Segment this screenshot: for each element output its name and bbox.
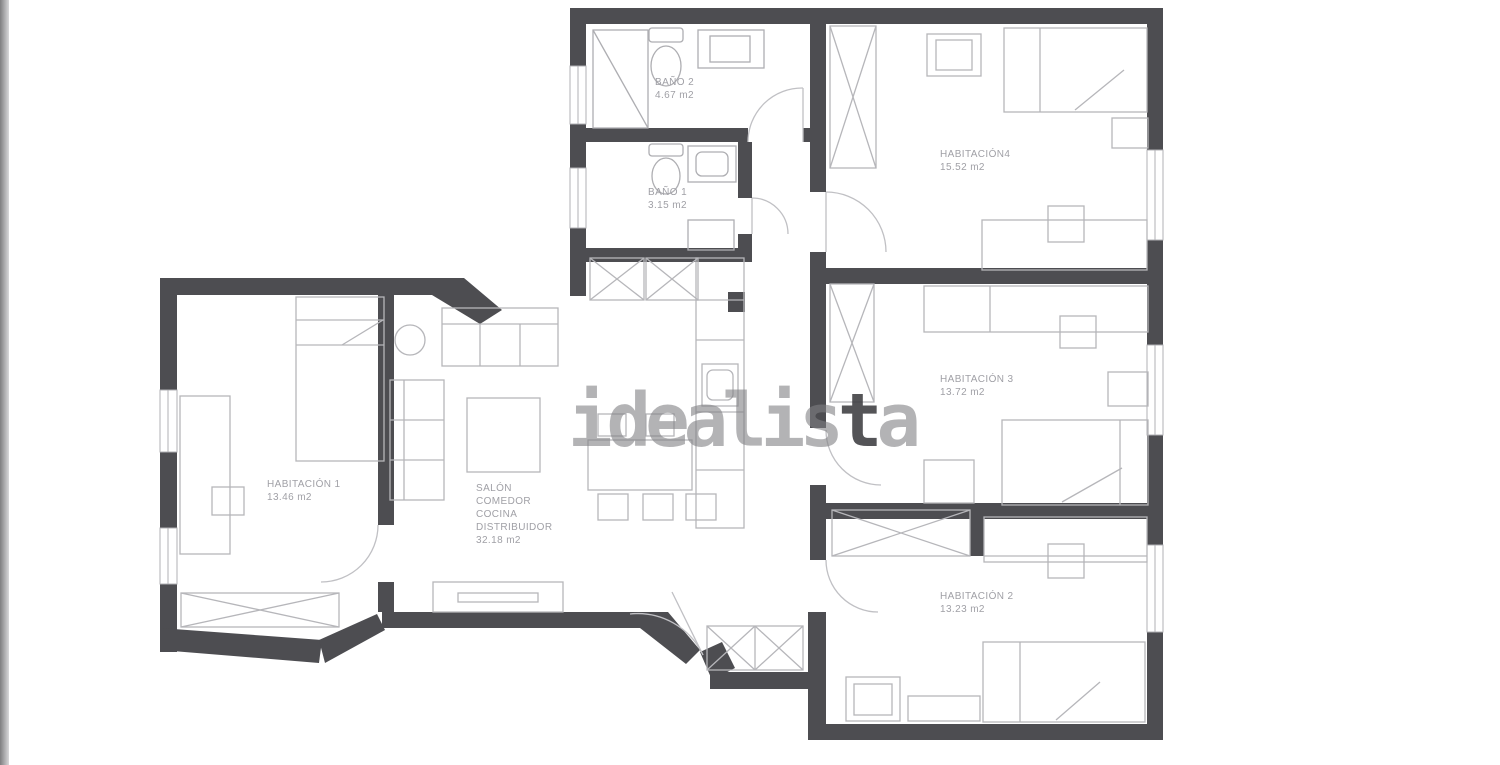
watermark-text: idealis [568,378,838,464]
room-name: HABITACIÓN4 [940,148,1010,161]
kitchen-cabinet [590,258,644,300]
bed [983,642,1145,722]
window [1147,545,1163,632]
bed [1002,420,1148,505]
room-name: COMEDOR [476,495,552,508]
watermark-text-dark: t [838,378,877,464]
window [160,528,177,584]
idealista-watermark: idealista [568,384,915,458]
room-label-habitacion3: HABITACIÓN 3 13.72 m2 [940,373,1014,399]
desk [982,220,1147,270]
chair [643,494,673,520]
room-name: BAÑO 1 [648,186,687,199]
side-table [395,325,425,355]
room-area: 32.18 m2 [476,534,552,547]
window [160,390,177,452]
room-name: HABITACIÓN 1 [267,478,341,491]
room-label-habitacion2: HABITACIÓN 2 13.23 m2 [940,590,1014,616]
shower-tray [698,30,764,68]
seat [846,677,900,721]
room-name: DISTRIBUIDOR [476,521,552,534]
sink [688,146,736,182]
chair [212,487,244,515]
room-name: HABITACIÓN 2 [940,590,1014,603]
room-area: 13.23 m2 [940,603,1014,616]
room-name: SALÓN [476,482,552,495]
chair [686,494,716,520]
windows [160,66,1163,632]
nightstand [1112,118,1148,148]
sofa [442,308,558,366]
room-label-salon: SALÓN COMEDOR COCINA DISTRIBUIDOR 32.18 … [476,482,552,547]
room-area: 13.72 m2 [940,386,1014,399]
room-area: 3.15 m2 [648,199,687,212]
wardrobe [181,593,339,627]
window [1147,345,1163,435]
bed [296,297,384,461]
room-area: 15.52 m2 [940,161,1010,174]
door-arcs [321,88,886,655]
furniture-habitacion2 [832,510,1147,722]
floorplan-image: BAÑO 2 4.67 m2 BAÑO 1 3.15 m2 HABITACIÓN… [0,0,1500,765]
wardrobe [830,26,876,168]
room-label-habitacion1: HABITACIÓN 1 13.46 m2 [267,478,341,504]
room-name: BAÑO 2 [655,76,694,89]
coffee-table [467,398,540,472]
chair [1048,544,1084,578]
chair [598,494,628,520]
bath-cabinet [593,30,648,128]
room-name: HABITACIÓN 3 [940,373,1014,386]
sofa [390,380,444,500]
furniture-habitacion1 [180,297,384,627]
window [570,66,586,124]
desk [924,286,1148,332]
tv-console [433,582,563,612]
nightstand [927,34,981,76]
window [1147,150,1163,240]
room-label-habitacion4: HABITACIÓN4 15.52 m2 [940,148,1010,174]
bench [908,696,980,721]
room-label-bano1: BAÑO 1 3.15 m2 [648,186,687,212]
bath-unit [688,220,734,250]
room-area: 13.46 m2 [267,491,341,504]
desk [984,517,1147,562]
room-name: COCINA [476,508,552,521]
desk [180,396,230,554]
window [570,168,586,228]
chair [1048,206,1084,242]
nightstand [1108,372,1148,406]
room-area: 4.67 m2 [655,89,694,102]
watermark-text: a [876,378,915,464]
cabinet [924,460,974,503]
kitchen-cabinet [646,258,698,300]
room-label-bano2: BAÑO 2 4.67 m2 [655,76,694,102]
bed [1004,28,1147,112]
